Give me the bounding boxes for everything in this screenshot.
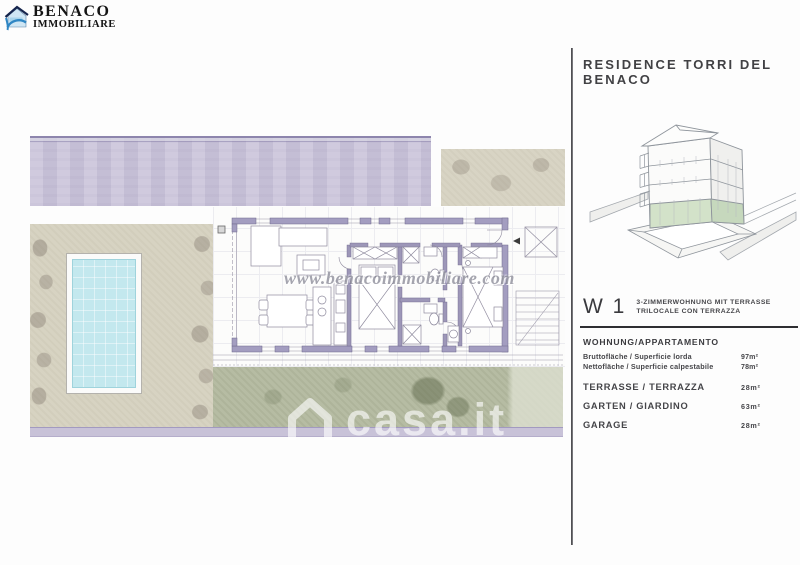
watermark-casait: casa.it: [282, 392, 507, 448]
row-label: TERRASSE / TERRAZZA: [583, 382, 705, 392]
table-row: Nettofläche / Superficie calpestabile 78…: [583, 362, 797, 372]
area-table: Bruttofläche / Superficie lorda 97m² Net…: [583, 352, 797, 430]
panel-divider-line: [571, 48, 573, 545]
unit-heading: W 1 3-ZIMMERWOHNUNG MIT TERRASSE TRILOCA…: [583, 296, 798, 318]
row-value: 97m²: [741, 353, 797, 362]
floorplan-sheet: BENACO IMMOBILIARE: [0, 0, 800, 565]
unit-code: W 1: [583, 296, 626, 318]
table-row: GARTEN / GIARDINO 63m²: [583, 401, 797, 411]
table-row: GARAGE 28m²: [583, 420, 797, 430]
skylight-shaft: [525, 227, 557, 257]
table-row: Bruttofläche / Superficie lorda 97m²: [583, 352, 797, 362]
agency-logo: BENACO IMMOBILIARE: [4, 4, 116, 31]
row-label: GARTEN / GIARDINO: [583, 401, 688, 411]
unit-desc-de: 3-ZIMMERWOHNUNG MIT TERRASSE: [636, 299, 770, 308]
logo-name: BENACO: [33, 4, 116, 19]
casa-house-icon: [282, 392, 338, 448]
table-row: TERRASSE / TERRAZZA 28m²: [583, 382, 797, 392]
row-label: GARAGE: [583, 420, 628, 430]
stairs: [516, 291, 559, 345]
garden-patch-top-right: [441, 149, 565, 206]
house-logo-icon: [4, 4, 30, 31]
bedroom2-furniture: [463, 247, 503, 334]
logo-subname: IMMOBILIARE: [33, 19, 116, 30]
casa-watermark-text: casa.it: [346, 394, 507, 446]
swimming-pool: [67, 254, 141, 393]
survey-marker: [218, 226, 225, 233]
road-strip: [30, 136, 431, 206]
residence-title: RESIDENCE TORRI DEL BENACO: [583, 57, 798, 87]
entrance-arrow: [513, 238, 520, 245]
row-value: 28m²: [741, 421, 797, 430]
row-value: 63m²: [741, 402, 797, 411]
row-label: Nettofläche / Superficie calpestabile: [583, 362, 713, 371]
bathroom-fixtures: [403, 247, 459, 344]
row-value: 78m²: [741, 363, 797, 372]
section-header: WOHNUNG/APPARTAMENTO: [583, 337, 719, 347]
row-label: Bruttofläche / Superficie lorda: [583, 352, 692, 361]
unit-rule-line: [580, 326, 798, 328]
row-value: 28m²: [741, 383, 797, 392]
unit-desc-it: TRILOCALE CON TERRAZZA: [636, 308, 770, 317]
building-render: [588, 100, 800, 292]
watermark-benacoimmobiliare: www.benacoimmobiliare.com: [284, 268, 534, 289]
